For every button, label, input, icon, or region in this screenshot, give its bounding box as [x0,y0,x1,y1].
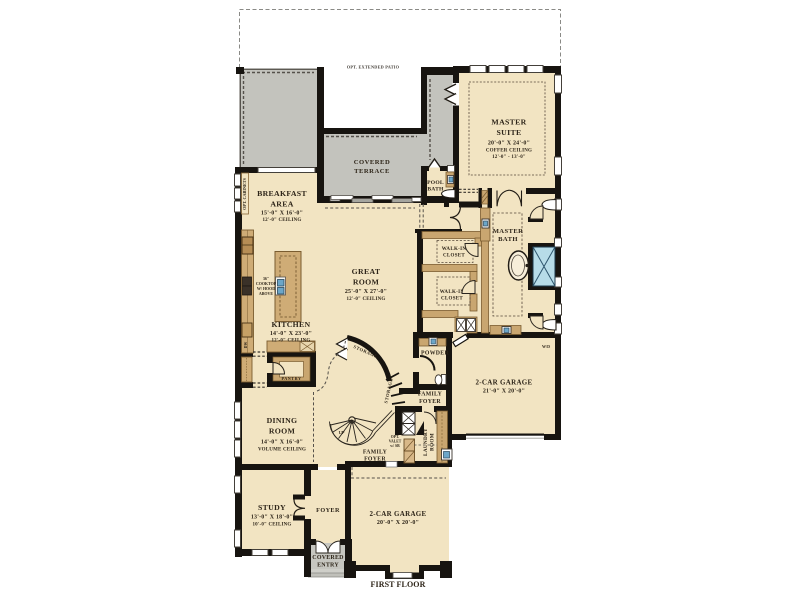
svg-text:ABOVE: ABOVE [259,291,274,296]
svg-text:FIRST FLOOR: FIRST FLOOR [371,580,426,589]
svg-text:20'-0" X 24'-0": 20'-0" X 24'-0" [488,141,530,147]
svg-text:20'-0" X 20'-0": 20'-0" X 20'-0" [377,520,419,526]
svg-text:BREAKFAST: BREAKFAST [257,189,307,198]
svg-text:ROOM: ROOM [269,427,296,436]
svg-text:COVERED: COVERED [312,555,344,561]
svg-text:FOYER: FOYER [364,457,386,463]
svg-text:FOYER: FOYER [419,399,441,405]
svg-text:TERRACE: TERRACE [354,168,390,175]
svg-text:ROOM: ROOM [430,433,436,451]
svg-text:13'-0" X 18'-0": 13'-0" X 18'-0" [251,515,293,521]
svg-text:14'-0" X 23'-0": 14'-0" X 23'-0" [270,331,312,337]
svg-text:GREAT: GREAT [352,267,381,276]
svg-text:POWDER: POWDER [421,351,449,357]
svg-text:21'-0" X 20'-0": 21'-0" X 20'-0" [483,389,525,395]
svg-text:MASTER: MASTER [493,228,524,235]
svg-text:WALK-IN: WALK-IN [440,290,465,295]
svg-text:POOL: POOL [427,180,444,186]
svg-text:COVERED: COVERED [354,159,390,166]
svg-text:OPT. CABINETS: OPT. CABINETS [242,177,247,209]
svg-text:W/D: W/D [542,344,550,349]
svg-text:ENTRY: ENTRY [317,563,339,569]
svg-text:UP: UP [339,430,345,435]
svg-text:25'-0" X 27'-0": 25'-0" X 27'-0" [345,289,387,295]
svg-text:PANTRY: PANTRY [282,376,302,381]
svg-text:AREA: AREA [270,200,293,209]
svg-text:FOYER: FOYER [316,507,340,514]
svg-text:DINING: DINING [267,416,298,425]
svg-text:12'-0" CEILING: 12'-0" CEILING [271,339,310,344]
svg-text:12'-0" - 13'-0": 12'-0" - 13'-0" [492,155,526,160]
svg-text:ROOM: ROOM [353,278,380,287]
svg-text:STUDY: STUDY [258,503,286,512]
svg-text:WALK-IN: WALK-IN [442,247,467,252]
svg-text:OPT. EXTENDED PATIO: OPT. EXTENDED PATIO [347,65,400,70]
svg-text:MASTER: MASTER [491,118,526,127]
svg-text:FAMILY: FAMILY [363,450,388,456]
svg-text:12'-0" CEILING: 12'-0" CEILING [346,297,385,302]
svg-text:BATH: BATH [427,187,444,193]
svg-text:14'-0" X 16'-0": 14'-0" X 16'-0" [261,440,303,446]
svg-text:VOLUME CEILING: VOLUME CEILING [258,448,306,453]
svg-text:SUITE: SUITE [497,128,522,137]
svg-text:OPT.: OPT. [391,435,400,439]
svg-text:12'-0" CEILING: 12'-0" CEILING [262,218,301,223]
svg-text:CLOSET: CLOSET [443,254,465,259]
svg-text:VALET: VALET [389,440,402,444]
svg-text:BATH: BATH [498,236,518,243]
svg-text:2-CAR GARAGE: 2-CAR GARAGE [475,379,532,387]
svg-text:15'-0" X 16'-0": 15'-0" X 16'-0" [261,211,303,217]
svg-text:w/ SB: w/ SB [390,444,400,448]
svg-text:KITCHEN: KITCHEN [272,320,311,329]
svg-text:FAMILY: FAMILY [418,392,443,398]
svg-text:DW: DW [244,342,248,349]
svg-text:CLOSET: CLOSET [441,297,463,302]
svg-text:10'-0" CEILING: 10'-0" CEILING [252,523,291,528]
svg-text:COFFER CEILING: COFFER CEILING [486,149,532,154]
svg-text:2-CAR GARAGE: 2-CAR GARAGE [369,510,426,518]
